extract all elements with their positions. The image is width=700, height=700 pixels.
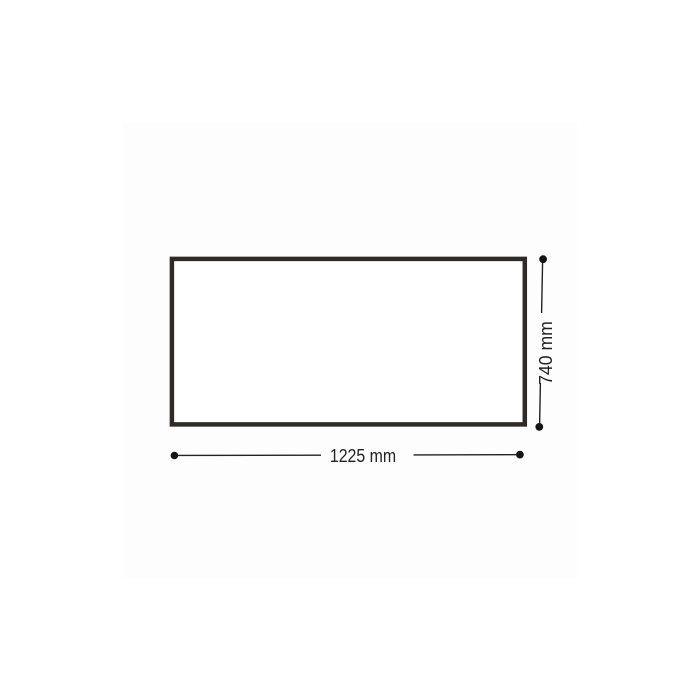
svg-text:740 mm: 740 mm — [535, 321, 556, 385]
svg-text:1225 mm: 1225 mm — [330, 445, 396, 466]
